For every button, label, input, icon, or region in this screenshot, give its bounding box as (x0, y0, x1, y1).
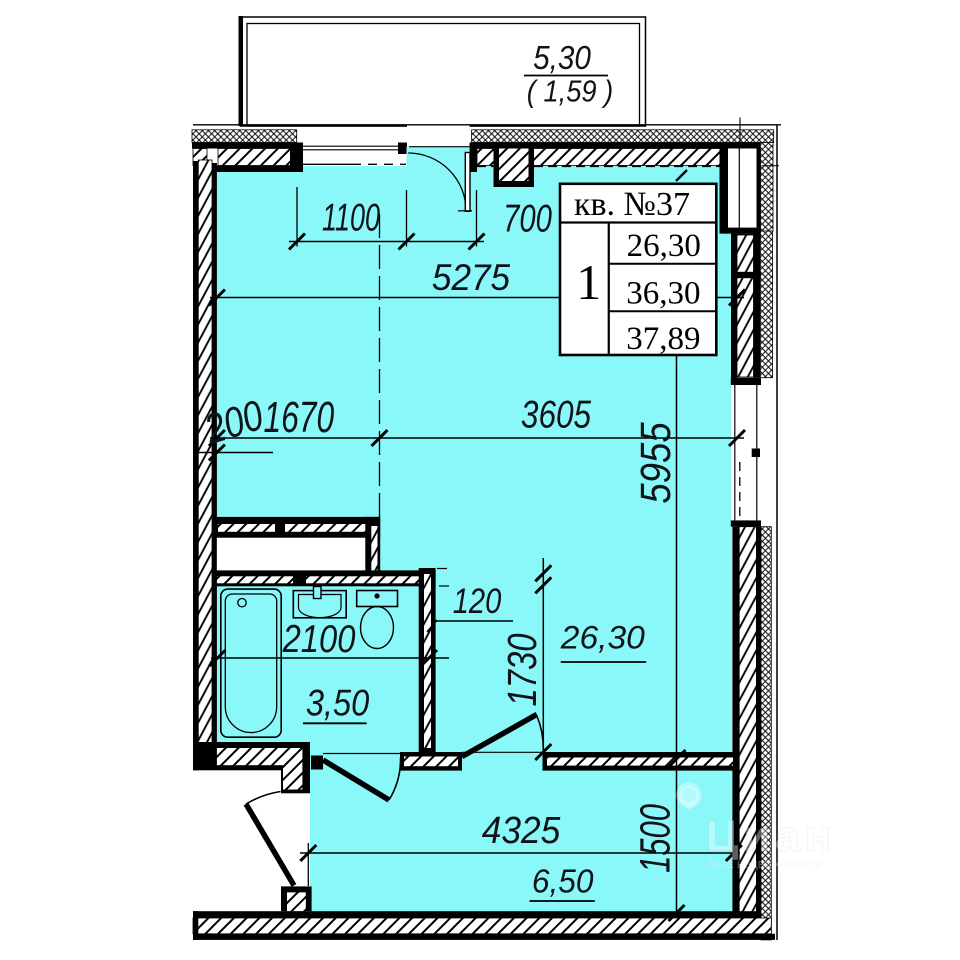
svg-text:37,89: 37,89 (626, 321, 700, 357)
svg-text:1500: 1500 (630, 804, 678, 873)
svg-text:6,50: 6,50 (532, 863, 594, 900)
svg-text:4325: 4325 (482, 809, 561, 851)
svg-text:3,50: 3,50 (306, 683, 370, 724)
svg-text:26,30: 26,30 (560, 619, 645, 655)
svg-text:1: 1 (576, 254, 601, 310)
svg-text:кв. №37: кв. №37 (574, 186, 690, 223)
svg-text:700: 700 (503, 198, 552, 241)
svg-text:120: 120 (453, 581, 502, 620)
svg-text:2100: 2100 (282, 618, 356, 661)
svg-text:5,30: 5,30 (533, 40, 591, 77)
svg-text:3605: 3605 (521, 394, 592, 437)
svg-text:база недвижимости: база недвижимости (707, 857, 821, 871)
svg-text:1100: 1100 (322, 197, 380, 240)
svg-text:26,30: 26,30 (627, 228, 701, 264)
svg-text:36,30: 36,30 (626, 276, 700, 312)
svg-text:( 1,59 ): ( 1,59 ) (527, 75, 613, 109)
svg-text:5955: 5955 (632, 422, 679, 504)
svg-text:1730: 1730 (498, 633, 544, 706)
svg-text:5275: 5275 (432, 256, 511, 298)
svg-text:1670: 1670 (263, 394, 334, 442)
svg-text:Циан: Циан (706, 812, 836, 861)
